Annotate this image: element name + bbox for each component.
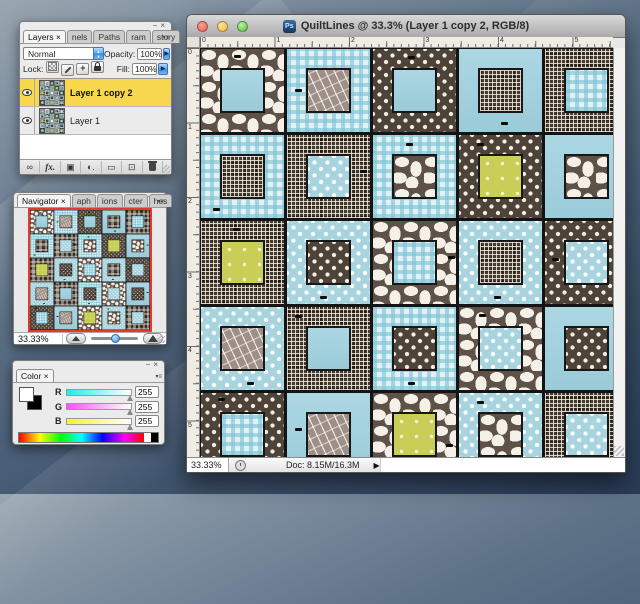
quilt-block-center	[60, 91, 63, 94]
layer-row-2[interactable]: Layer 1	[20, 107, 171, 135]
navigator-panel-tabs: Navigator ×aphionscterhes▾≡	[14, 194, 166, 208]
quilt-block	[30, 234, 54, 258]
stepper-icon[interactable]: ▲▼	[93, 47, 104, 60]
quilt-stitch-mark	[360, 170, 367, 173]
color-panel-tabs: Color ×▾≡	[13, 369, 164, 383]
layers-panel-tabs: Layers ×nelsPathsramstory▾≡	[20, 30, 171, 44]
quilt-block-center	[564, 412, 609, 457]
quilt-block-center	[56, 114, 59, 117]
quilt-block-center	[220, 326, 265, 371]
opacity-field[interactable]: 100%	[137, 48, 162, 60]
lock-position-icon: +	[80, 64, 85, 73]
opacity-slider-button[interactable]: ▶	[163, 48, 170, 60]
quilt-block-center	[108, 264, 121, 277]
slider-thumb-icon	[127, 424, 133, 430]
quilt-block-center	[41, 86, 44, 89]
ruler-number: 3	[426, 37, 430, 44]
layer-style-button[interactable]: fx.	[40, 161, 60, 173]
quilt-block	[54, 258, 78, 282]
visibility-toggle[interactable]	[20, 107, 35, 134]
quilt-block	[372, 48, 457, 133]
ruler-number: 0	[202, 37, 206, 44]
navigator-tab-2[interactable]: aph	[72, 194, 96, 207]
quilt-block-center	[84, 264, 97, 277]
layers-tab-1[interactable]: Layers ×	[23, 30, 66, 43]
quilt-block-center	[60, 264, 73, 277]
quilt-block	[544, 48, 614, 133]
quilt-block-center	[36, 264, 49, 277]
panel-menu-icon[interactable]: ▾≡	[157, 199, 164, 205]
quilt-block-center	[220, 68, 265, 113]
quilt-block	[544, 220, 614, 305]
quilt-block-center	[306, 240, 351, 285]
lock-image-button[interactable]	[61, 64, 74, 76]
quilt-stitch-mark	[108, 284, 110, 285]
quilt-block	[372, 306, 457, 391]
quilt-stitch-mark	[40, 212, 42, 213]
quilt-block	[126, 282, 150, 306]
fill-label: Fill:	[117, 64, 130, 74]
channel-value-field[interactable]: 255	[135, 386, 159, 398]
quilt-block	[458, 134, 543, 219]
quilt-block	[200, 134, 285, 219]
quilt-block-center	[84, 216, 97, 229]
quilt-block-center	[478, 326, 523, 371]
channel-value-field[interactable]: 255	[135, 415, 159, 427]
navigator-zoom-slider[interactable]	[89, 333, 140, 344]
quilt-block	[126, 306, 150, 330]
quilt-stitch-mark	[88, 303, 90, 304]
quilt-stitch-mark	[34, 255, 36, 256]
quilt-block-center	[564, 154, 609, 199]
layer-name: Layer 1	[70, 116, 100, 126]
quilt-block	[126, 258, 150, 282]
quilt-block-center	[46, 96, 49, 99]
navigator-tab-3[interactable]: ions	[97, 194, 123, 207]
quilt-stitch-mark	[107, 309, 109, 310]
panel-menu-icon[interactable]: ▾≡	[162, 35, 169, 41]
panel-resize-grip[interactable]	[157, 335, 165, 343]
quilt-stitch-mark	[57, 316, 59, 317]
ruler-number: 2	[351, 37, 355, 44]
quilt-block-center	[51, 124, 54, 127]
quilt-block	[78, 306, 102, 330]
lock-label: Lock:	[23, 64, 43, 74]
quilt-block	[200, 220, 285, 305]
quilt-block-center	[56, 82, 59, 85]
quilt-block-center	[84, 240, 97, 253]
document-window: Ps QuiltLines @ 33.3% (Layer 1 copy 2, R…	[186, 14, 626, 473]
quilt-block	[59, 81, 64, 86]
quilt-block	[54, 234, 78, 258]
quilt-block-center	[56, 119, 59, 122]
navigator-preview-area	[14, 208, 166, 332]
quilt-block	[372, 134, 457, 219]
quilt-stitch-mark	[552, 258, 559, 261]
quilt-block-center	[564, 68, 609, 113]
layer-thumbnail	[39, 108, 65, 134]
navigator-bottom-bar: 33.33%	[14, 332, 166, 344]
quilt-block	[102, 282, 126, 306]
quilt-block-center	[56, 101, 59, 104]
quilt-block	[59, 118, 64, 123]
horizontal-scrollbar[interactable]	[380, 458, 625, 472]
layer-thumbnail	[39, 80, 65, 106]
quilt-block	[59, 109, 64, 114]
color-channel-row: G255	[55, 400, 159, 415]
quilt-block-center	[41, 119, 44, 122]
quilt-image	[30, 210, 150, 330]
quilt-stitch-mark	[213, 208, 220, 211]
quilt-block-center	[564, 326, 609, 371]
layer-name: Layer 1 copy 2	[70, 88, 133, 98]
quilt-block-center	[51, 82, 54, 85]
quilt-block-center	[132, 288, 145, 301]
layers-tab-2[interactable]: nels	[67, 30, 93, 43]
quilt-stitch-mark	[39, 260, 41, 261]
quilt-block-center	[108, 240, 121, 253]
quilt-block	[30, 258, 54, 282]
quilt-block	[54, 306, 78, 330]
document-title: QuiltLines @ 33.3% (Layer 1 copy 2, RGB/…	[301, 20, 529, 32]
quilt-stitch-mark	[112, 279, 114, 280]
close-window-button[interactable]	[197, 21, 208, 32]
eye-icon	[22, 117, 32, 124]
quilt-stitch-mark	[88, 212, 90, 213]
quilt-block-center	[56, 96, 59, 99]
panel-titlebar[interactable]: −×	[13, 361, 164, 369]
quilt-block-center	[46, 101, 49, 104]
color-spectrum-ramp[interactable]	[18, 432, 159, 443]
quilt-stitch-mark	[43, 303, 45, 304]
lock-position-button[interactable]: +	[76, 63, 89, 75]
ruler-number: 4	[500, 37, 504, 44]
layers-panel: −× Layers ×nelsPathsramstory▾≡ Normal ▲▼…	[19, 21, 172, 175]
navigator-zoom-field[interactable]: 33.33%	[14, 334, 63, 344]
doc-size-text: Doc: 8.15M/16.3M	[286, 460, 360, 470]
quilt-stitch-mark	[233, 228, 240, 231]
quilt-stitch-mark	[408, 382, 415, 385]
quilt-block	[54, 210, 78, 234]
lock-buttons: +	[46, 61, 106, 77]
ruler-number: 2	[188, 198, 192, 205]
quilt-block-center	[60, 216, 73, 229]
minimize-window-button[interactable]	[217, 21, 228, 32]
quilt-stitch-mark	[247, 382, 254, 385]
quilt-block-center	[60, 312, 73, 325]
layer-row-1[interactable]: Layer 1 copy 2	[20, 79, 171, 107]
panel-resize-grip[interactable]	[162, 165, 170, 173]
layer-mask-icon: ▣	[66, 162, 75, 172]
quilt-image	[40, 109, 64, 133]
ruler-number: 1	[277, 37, 281, 44]
quilt-block-center	[132, 312, 145, 325]
quilt-block-center	[84, 288, 97, 301]
quilt-block	[59, 113, 64, 118]
quilt-block	[30, 210, 54, 234]
quilt-block-center	[41, 82, 44, 85]
new-layer-icon: ⊡	[128, 162, 136, 172]
vertical-ruler: 012345	[187, 48, 200, 457]
status-bar: 33.33% Doc: 8.15M/16.3M ▶	[187, 457, 625, 472]
channel-label: G	[55, 402, 63, 412]
quilt-block	[78, 258, 102, 282]
quilt-stitch-mark	[75, 244, 77, 245]
quilt-block-center	[56, 86, 59, 89]
quilt-block	[54, 282, 78, 306]
quilt-block-center	[220, 240, 265, 285]
navigator-tab-4[interactable]: cter	[124, 194, 148, 207]
visibility-toggle[interactable]	[20, 79, 35, 106]
quilt-block-center	[60, 101, 63, 104]
quilt-block-center	[60, 240, 73, 253]
layers-bottom-bar: ∞fx.▣◐.▭⊡	[20, 159, 171, 174]
status-zoom-field[interactable]: 33.33%	[187, 458, 229, 472]
quilt-stitch-mark	[295, 89, 302, 92]
quilt-block	[59, 85, 64, 90]
quilt-block-center	[56, 129, 59, 132]
lock-all-button[interactable]	[91, 61, 104, 73]
quilt-image	[200, 48, 614, 457]
horizontal-ruler: 012345	[200, 37, 613, 48]
foreground-color-swatch[interactable]	[19, 387, 34, 402]
quilt-block-center	[51, 110, 54, 113]
quilt-block-center	[220, 412, 265, 457]
quilt-stitch-mark	[88, 237, 90, 238]
panel-menu-icon[interactable]: ▾≡	[155, 374, 162, 380]
link-layers-icon: ∞	[27, 162, 33, 172]
quilt-block	[126, 234, 150, 258]
quilt-block	[102, 234, 126, 258]
channel-slider[interactable]	[66, 389, 132, 396]
quilt-block-center	[46, 82, 49, 85]
quilt-block-center	[56, 124, 59, 127]
quilt-stitch-mark	[64, 279, 66, 280]
quilt-block	[126, 210, 150, 234]
eye-icon	[22, 89, 32, 96]
quilt-stitch-mark	[479, 314, 486, 317]
layers-tab-4[interactable]: ram	[126, 30, 151, 43]
quilt-block-center	[36, 216, 49, 229]
color-channel-row: R255	[55, 385, 159, 400]
quilt-block-center	[41, 114, 44, 117]
ruler-number: 5	[188, 422, 192, 429]
channel-label: B	[55, 416, 63, 426]
quilt-block-center	[56, 91, 59, 94]
channel-slider[interactable]	[66, 418, 132, 425]
quilt-stitch-mark	[114, 231, 116, 232]
quilt-block-center	[392, 412, 437, 457]
quilt-block	[59, 100, 64, 105]
quilt-block	[102, 210, 126, 234]
photoshop-doc-icon: Ps	[283, 20, 296, 33]
quilt-stitch-mark	[295, 315, 302, 318]
quilt-block-center	[51, 114, 54, 117]
quilt-block	[78, 234, 102, 258]
quilt-block	[286, 306, 371, 391]
ruler-number: 1	[188, 124, 192, 131]
quilt-block	[458, 306, 543, 391]
quilt-block-center	[306, 412, 351, 457]
quilt-block-center	[564, 240, 609, 285]
window-resize-grip[interactable]	[614, 446, 624, 456]
quilt-stitch-mark	[35, 308, 37, 309]
zoom-out-button[interactable]	[66, 333, 86, 344]
quilt-block	[102, 306, 126, 330]
quilt-block-center	[478, 154, 523, 199]
layer-group-button[interactable]: ▭	[102, 161, 122, 173]
fill-slider-button[interactable]: ▶	[158, 63, 168, 75]
quilt-block-center	[478, 68, 523, 113]
quilt-block-center	[41, 129, 44, 132]
panel-titlebar[interactable]: −×	[20, 22, 171, 30]
canvas-viewport[interactable]	[200, 48, 614, 457]
panel-close-icon[interactable]: ×	[160, 21, 168, 30]
channel-value-field[interactable]: 255	[135, 401, 159, 413]
quilt-stitch-mark	[477, 401, 484, 404]
quilt-stitch-mark	[494, 296, 501, 299]
quilt-block	[30, 282, 54, 306]
quilt-block	[102, 258, 126, 282]
link-layers-button[interactable]: ∞	[20, 161, 40, 173]
quilt-stitch-mark	[147, 245, 149, 246]
quilt-stitch-mark	[234, 55, 241, 58]
quilt-block-center	[56, 110, 59, 113]
ruler-number: 0	[188, 49, 192, 56]
version-cue-status-icon[interactable]	[235, 460, 246, 471]
quilt-block-center	[108, 288, 121, 301]
vertical-scrollbar[interactable]	[613, 48, 625, 457]
quilt-block	[78, 282, 102, 306]
ruler-number: 3	[188, 273, 192, 280]
color-tab-1[interactable]: Color ×	[16, 369, 54, 382]
quilt-block	[372, 392, 457, 457]
quilt-block-center	[60, 129, 63, 132]
slider-thumb[interactable]	[111, 334, 120, 343]
quilt-block-center	[132, 264, 145, 277]
quilt-block-center	[46, 129, 49, 132]
navigator-panel: −× Navigator ×aphionscterhes▾≡ 33.33%	[13, 192, 167, 345]
quilt-block-center	[41, 110, 44, 113]
blend-mode-value: Normal	[23, 47, 93, 60]
quilt-block	[458, 48, 543, 133]
quilt-stitch-mark	[136, 327, 138, 328]
navigator-tab-1[interactable]: Navigator ×	[17, 194, 71, 207]
quilt-block	[458, 220, 543, 305]
layers-tab-3[interactable]: Paths	[93, 30, 125, 43]
quilt-stitch-mark	[501, 122, 508, 125]
quilt-block	[286, 392, 371, 457]
lock-image-icon	[64, 67, 71, 74]
zoom-window-button[interactable]	[237, 21, 248, 32]
panel-close-icon[interactable]: ×	[153, 360, 161, 369]
navigator-view-box[interactable]	[28, 208, 152, 332]
quilt-block	[286, 220, 371, 305]
quilt-block	[372, 220, 457, 305]
layers-list: Layer 1 copy 2Layer 1	[20, 78, 171, 159]
quilt-block-center	[392, 240, 437, 285]
lock-transparency-icon	[48, 62, 57, 71]
layer-group-icon: ▭	[107, 162, 116, 172]
quilt-block	[458, 392, 543, 457]
quilt-stitch-mark	[57, 221, 59, 222]
quilt-stitch-mark	[99, 268, 101, 269]
ruler-number: 4	[188, 347, 192, 354]
delete-layer-button[interactable]	[143, 161, 163, 173]
quilt-block-center	[478, 412, 523, 457]
quilt-block	[200, 392, 285, 457]
quilt-block-center	[108, 216, 121, 229]
quilt-block-center	[46, 124, 49, 127]
quilt-block-center	[132, 216, 145, 229]
quilt-block	[286, 48, 371, 133]
quilt-stitch-mark	[147, 292, 149, 293]
quilt-block-center	[478, 240, 523, 285]
lock-transparency-button[interactable]	[46, 61, 59, 73]
new-layer-button[interactable]: ⊡	[122, 161, 142, 173]
quilt-stitch-mark	[99, 321, 101, 322]
color-channel-row: B255	[55, 414, 159, 429]
quilt-block-center	[306, 68, 351, 113]
layer-mask-button[interactable]: ▣	[61, 161, 81, 173]
quilt-block-center	[84, 312, 97, 325]
quilt-block	[30, 306, 54, 330]
adjustment-layer-button[interactable]: ◐.	[81, 161, 101, 173]
quilt-stitch-mark	[320, 296, 327, 299]
quilt-block-center	[392, 326, 437, 371]
quilt-block-center	[132, 240, 145, 253]
quilt-stitch-mark	[295, 428, 302, 431]
quilt-stitch-mark	[218, 398, 225, 401]
quilt-stitch-mark	[128, 268, 130, 269]
quilt-block-center	[306, 154, 351, 199]
quilt-block-center	[51, 96, 54, 99]
quilt-block-center	[36, 288, 49, 301]
window-titlebar[interactable]: Ps QuiltLines @ 33.3% (Layer 1 copy 2, R…	[187, 15, 625, 38]
quilt-block	[59, 128, 64, 133]
quilt-block-center	[51, 86, 54, 89]
quilt-block-center	[46, 119, 49, 122]
fill-field[interactable]: 100%	[132, 63, 157, 75]
quilt-block-center	[220, 154, 265, 199]
quilt-block	[59, 90, 64, 95]
quilt-block-center	[46, 91, 49, 94]
quilt-block-center	[41, 96, 44, 99]
slider-thumb-icon	[127, 409, 133, 415]
quilt-block	[59, 123, 64, 128]
quilt-block-center	[46, 110, 49, 113]
channel-slider[interactable]	[66, 403, 132, 410]
quilt-block-center	[60, 119, 63, 122]
quilt-block-center	[392, 154, 437, 199]
color-panel-body: R255G255B255	[13, 383, 164, 444]
channel-label: R	[55, 387, 63, 397]
quilt-block-center	[41, 101, 44, 104]
color-panel: −× Color ×▾≡ R255G255B255	[12, 360, 165, 445]
quilt-stitch-mark	[448, 256, 455, 259]
quilt-block-center	[36, 312, 49, 325]
quilt-block-center	[60, 288, 73, 301]
ruler-corner	[187, 37, 200, 48]
delete-layer-icon	[149, 163, 156, 171]
quilt-block-center	[36, 240, 49, 253]
opacity-label: Opacity:	[104, 49, 135, 59]
quilt-block-center	[108, 312, 121, 325]
quilt-stitch-mark	[477, 143, 484, 146]
blend-mode-select[interactable]: Normal ▲▼	[23, 47, 104, 60]
quilt-block-center	[41, 124, 44, 127]
quilt-stitch-mark	[446, 444, 453, 447]
